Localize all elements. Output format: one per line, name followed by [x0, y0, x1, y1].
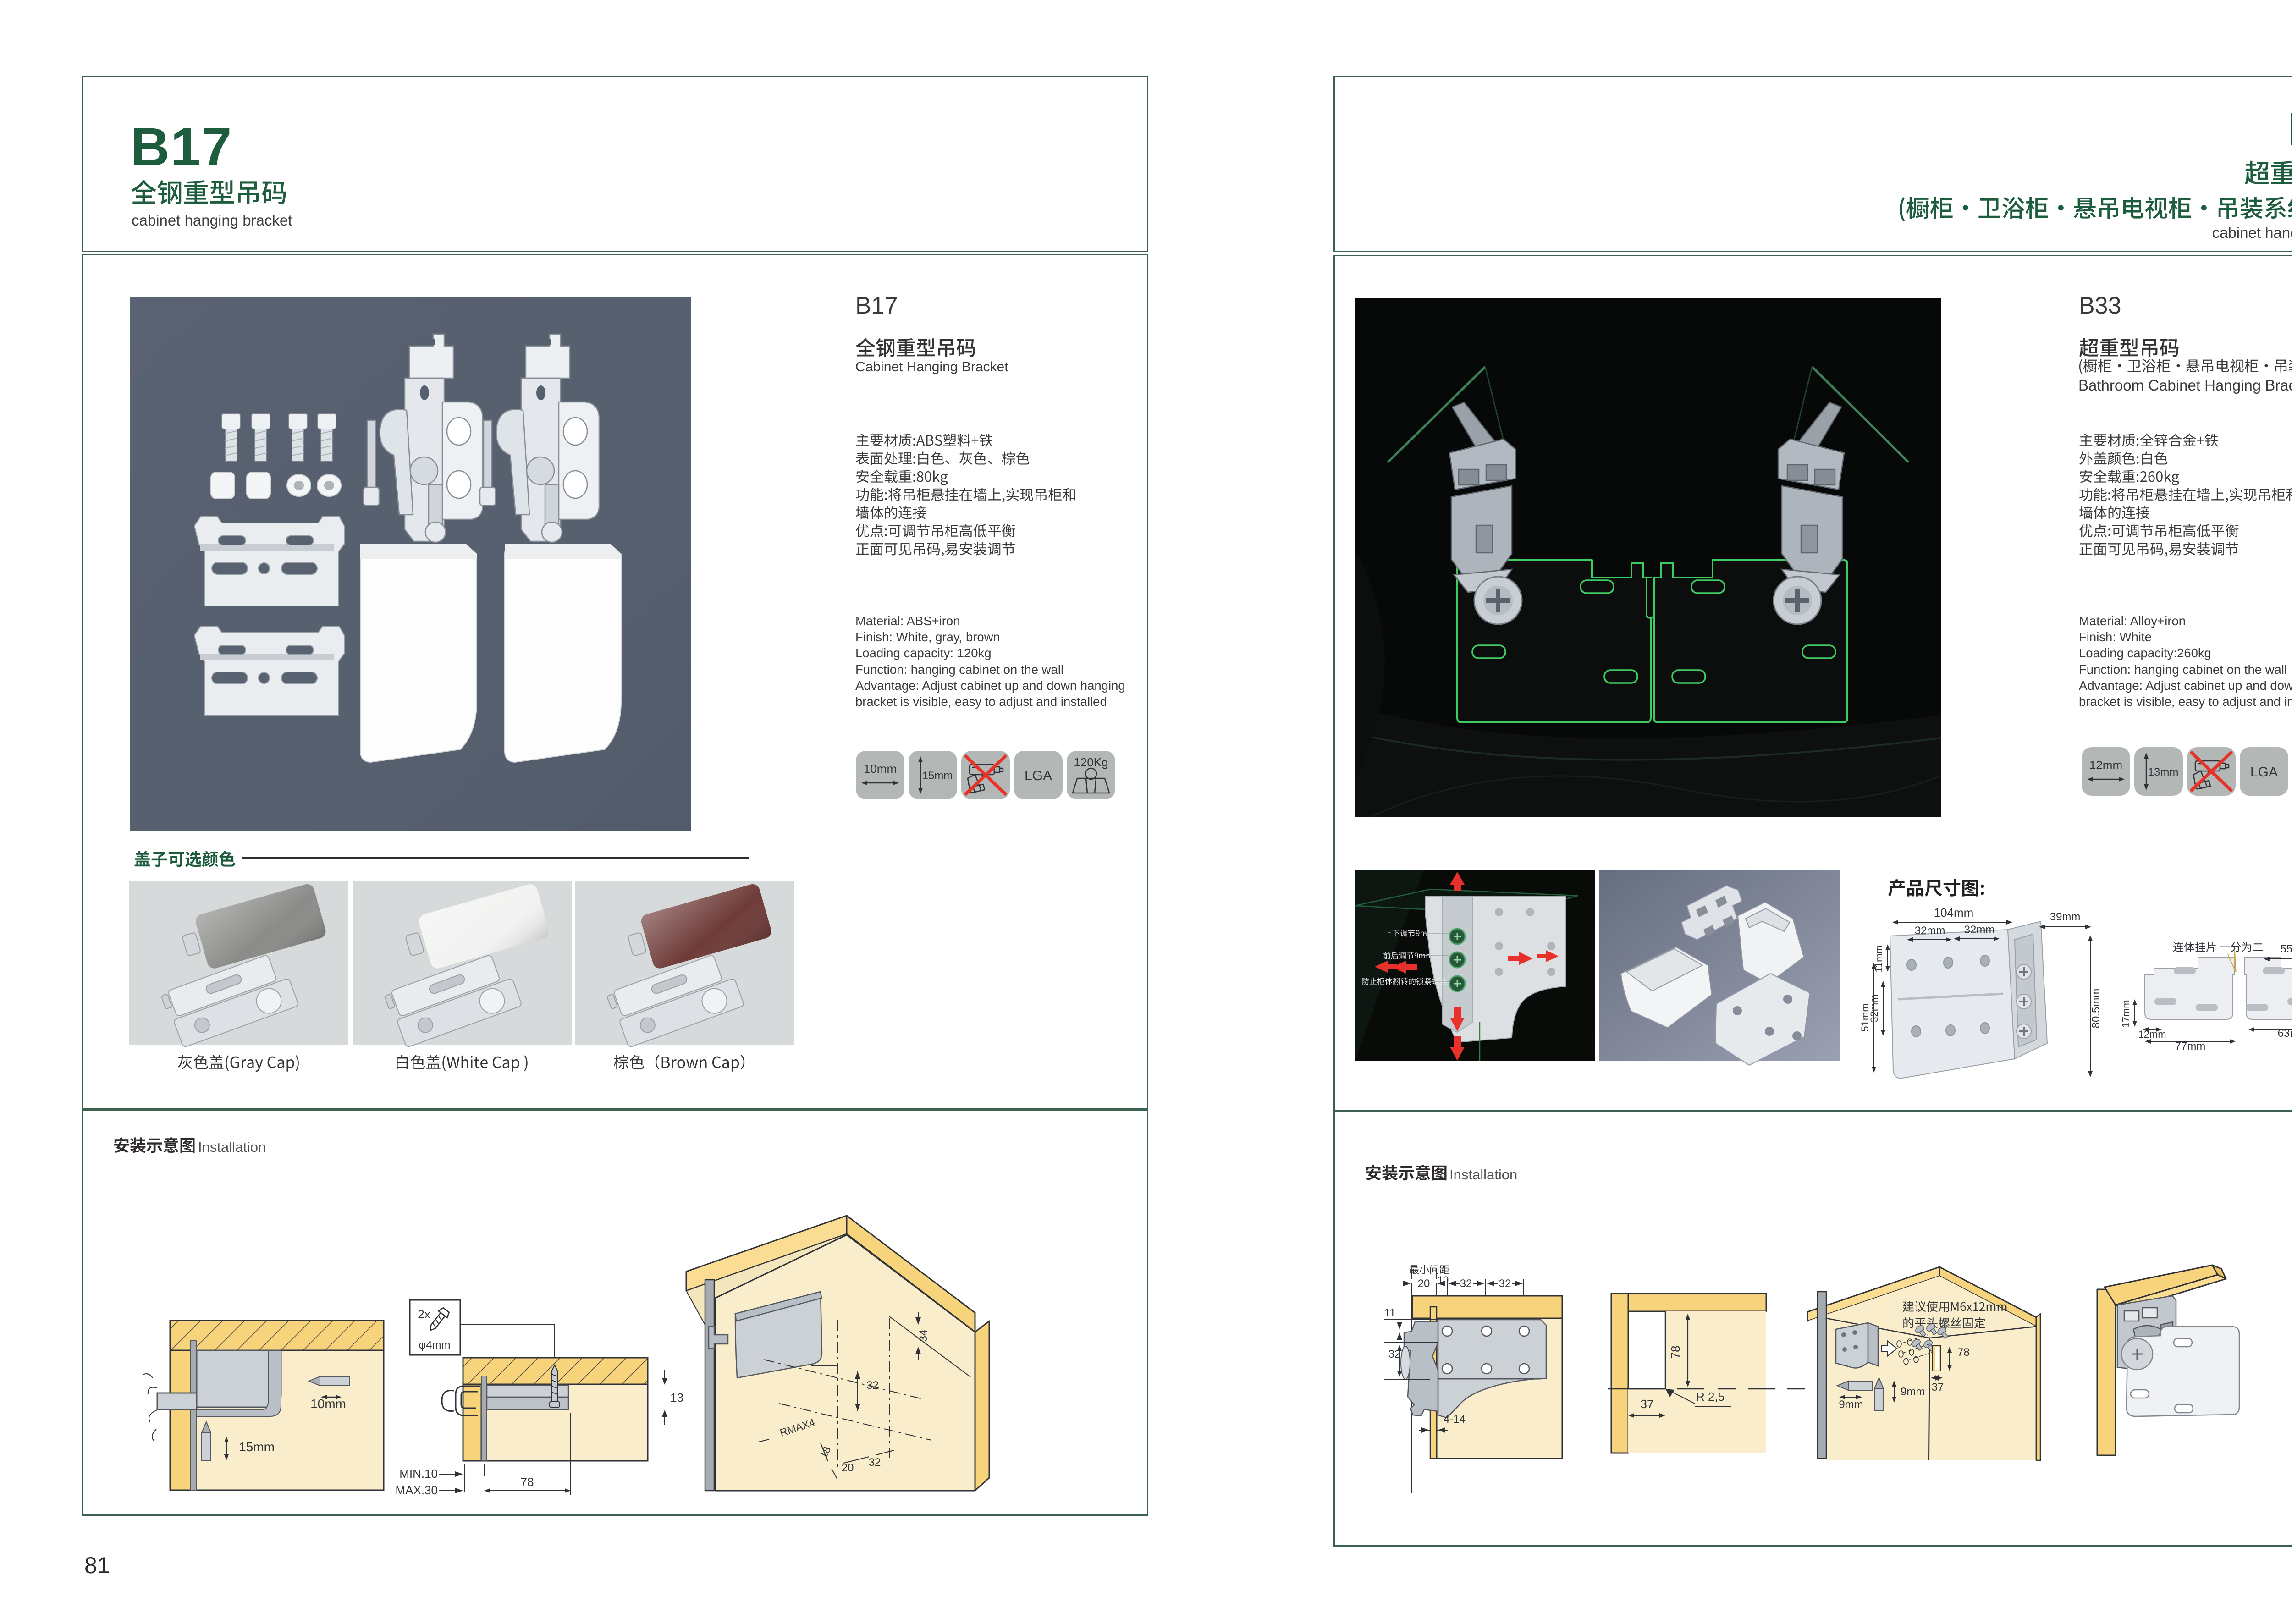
svg-text:37: 37	[1932, 1381, 1944, 1393]
svg-text:32: 32	[1499, 1277, 1511, 1290]
svg-text:13mm: 13mm	[2148, 766, 2179, 778]
svg-text:12mm: 12mm	[2089, 758, 2122, 772]
svg-text:MIN.10: MIN.10	[399, 1467, 438, 1481]
svg-text:LGA: LGA	[2250, 765, 2278, 780]
svg-text:37: 37	[1641, 1397, 1654, 1411]
svg-text:32: 32	[1460, 1277, 1472, 1290]
svg-text:LGA: LGA	[1025, 768, 1052, 783]
svg-text:9mm: 9mm	[1901, 1386, 1925, 1398]
svg-text:10mm: 10mm	[864, 762, 897, 776]
svg-text:120Kg: 120Kg	[1074, 755, 1108, 769]
svg-text:32mm: 32mm	[1964, 924, 1995, 936]
svg-text:80.5mm: 80.5mm	[2090, 989, 2102, 1029]
svg-text:51mm: 51mm	[1859, 1003, 1871, 1031]
svg-text:78: 78	[1957, 1346, 1970, 1359]
svg-text:2x: 2x	[418, 1307, 430, 1321]
svg-text:34: 34	[917, 1330, 930, 1342]
svg-text:32mm: 32mm	[1915, 925, 1945, 937]
svg-text:15mm: 15mm	[922, 770, 953, 782]
svg-text:55mm: 55mm	[2281, 943, 2292, 955]
svg-text:32: 32	[866, 1379, 879, 1392]
svg-text:15mm: 15mm	[239, 1440, 275, 1454]
svg-text:78: 78	[521, 1475, 534, 1489]
svg-text:104mm: 104mm	[1934, 906, 1974, 919]
svg-text:11: 11	[1384, 1307, 1396, 1319]
svg-text:R 2,5: R 2,5	[1696, 1390, 1725, 1404]
svg-text:32: 32	[869, 1456, 881, 1469]
svg-text:MAX.30: MAX.30	[396, 1483, 438, 1497]
svg-text:12mm: 12mm	[2138, 1029, 2166, 1040]
svg-text:φ4mm: φ4mm	[419, 1339, 451, 1351]
svg-text:78: 78	[1669, 1346, 1682, 1359]
svg-text:4-14: 4-14	[1444, 1413, 1466, 1426]
svg-text:13: 13	[670, 1391, 683, 1404]
svg-text:77mm: 77mm	[2175, 1040, 2206, 1052]
svg-text:20: 20	[842, 1462, 854, 1474]
svg-text:17mm: 17mm	[2120, 1000, 2132, 1028]
svg-text:20: 20	[1418, 1277, 1430, 1290]
svg-text:10mm: 10mm	[310, 1397, 346, 1411]
svg-text:39mm: 39mm	[2050, 911, 2081, 923]
svg-text:9mm: 9mm	[1839, 1398, 1863, 1411]
